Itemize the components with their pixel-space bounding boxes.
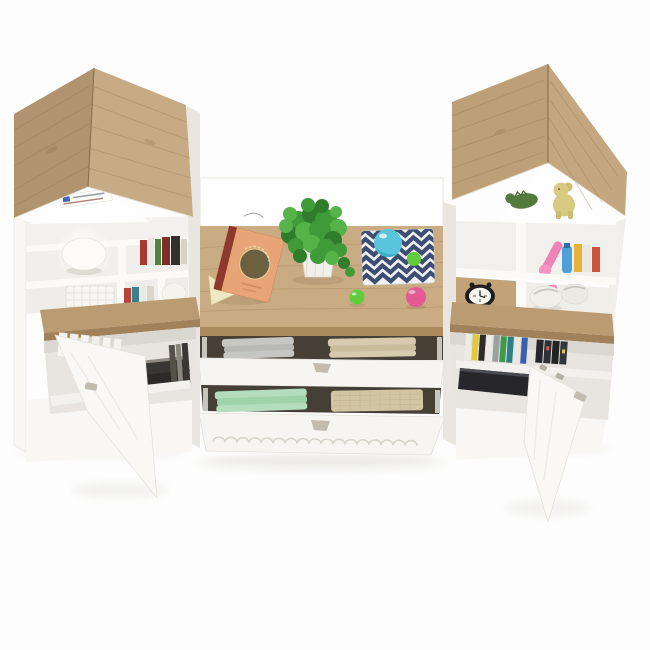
drawer-shadow [208, 455, 432, 465]
drawer-rail [437, 337, 442, 360]
green-ball [350, 290, 365, 305]
left-tower-left-wall [14, 218, 26, 452]
drawer-rail [435, 390, 440, 413]
book-spine [140, 240, 147, 265]
tan-textured-blanket [331, 389, 423, 412]
drawer-1-front[interactable] [199, 358, 444, 388]
beige-clothes-stack [328, 337, 416, 358]
book-spine [181, 239, 187, 264]
book-spine [148, 238, 154, 265]
drawer-rail [203, 388, 208, 411]
book-spine [583, 245, 591, 272]
book-spine [592, 247, 600, 272]
compartment-divider [516, 222, 526, 276]
pink-ball [406, 287, 426, 307]
book-spine [155, 239, 161, 265]
desk-front-edge [193, 327, 451, 336]
left-house-tower [14, 68, 200, 498]
teddy-toy [553, 183, 575, 220]
green-ball [407, 252, 421, 266]
book-spine [574, 244, 582, 272]
drawer-rail [202, 337, 207, 360]
furniture-render [0, 0, 650, 650]
dome-lamp [57, 227, 111, 281]
book-spine [171, 236, 180, 265]
product-render-svg [0, 0, 650, 650]
blue-ball-toy [374, 229, 402, 257]
mint-clothes-stack [215, 388, 308, 412]
drawer-2-front[interactable] [199, 413, 445, 455]
blue-bottle [562, 246, 572, 273]
book-spine [162, 237, 170, 265]
gray-clothes-stack [222, 337, 295, 360]
